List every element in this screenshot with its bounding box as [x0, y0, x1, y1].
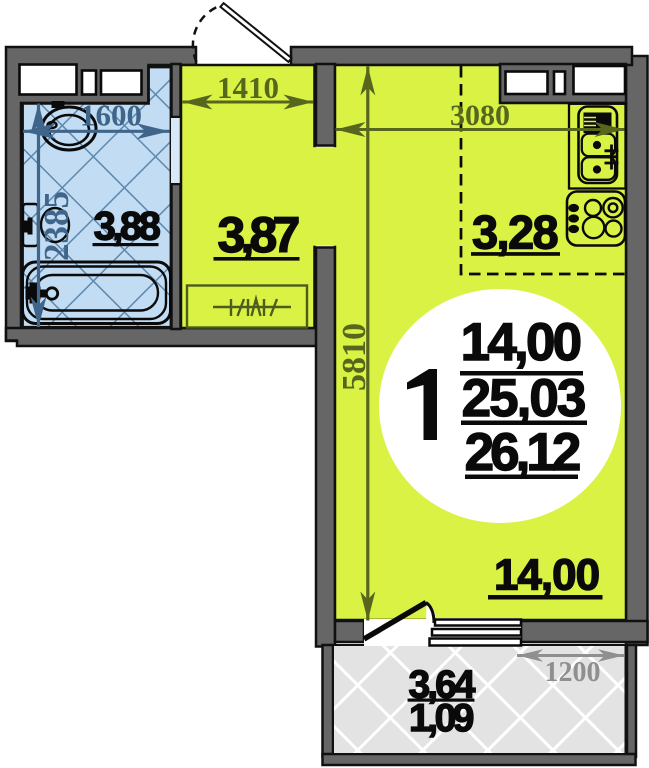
svg-text:5810: 5810: [336, 323, 373, 391]
svg-text:1410: 1410: [217, 70, 279, 105]
svg-text:3,87: 3,87: [217, 207, 298, 263]
svg-text:1,09: 1,09: [409, 697, 474, 740]
svg-text:1200: 1200: [545, 657, 601, 688]
svg-text:3080: 3080: [450, 99, 510, 132]
svg-text:1600: 1600: [80, 98, 142, 133]
svg-text:25,03: 25,03: [462, 369, 585, 428]
svg-text:3,28: 3,28: [472, 205, 558, 258]
svg-text:14,00: 14,00: [494, 551, 599, 600]
svg-text:26,12: 26,12: [465, 423, 580, 482]
svg-text:3,88: 3,88: [94, 205, 161, 249]
svg-text:2385: 2385: [37, 191, 76, 261]
svg-text:14,00: 14,00: [461, 313, 581, 372]
